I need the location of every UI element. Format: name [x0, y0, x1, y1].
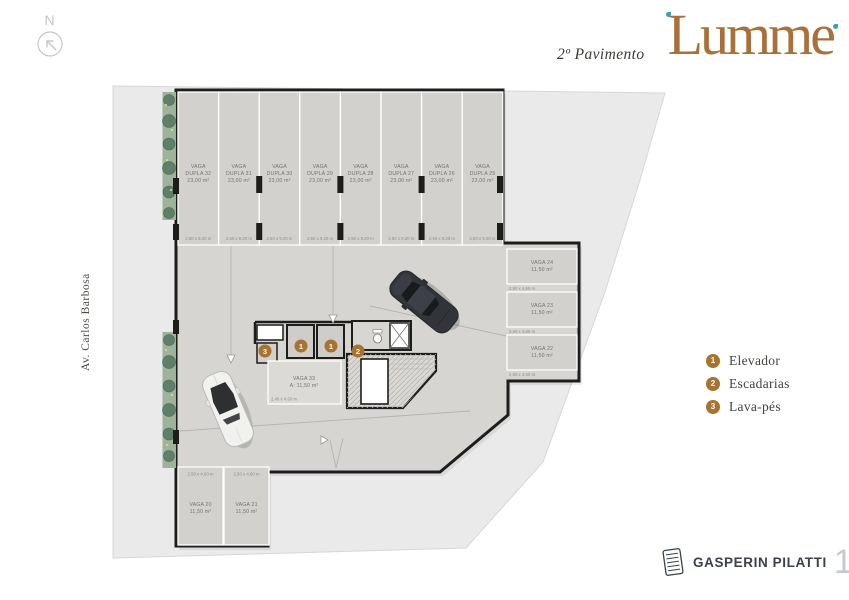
planting-strip-bottom [163, 332, 177, 468]
svg-text:VAGA: VAGA [272, 164, 287, 170]
svg-text:2,50 x 9,20 m: 2,50 x 9,20 m [469, 236, 495, 241]
svg-text:DUPLA 29: DUPLA 29 [307, 171, 333, 177]
svg-text:3: 3 [263, 347, 267, 356]
svg-text:VAGA 20: VAGA 20 [189, 502, 211, 508]
shaft-x-box [390, 323, 409, 348]
svg-text:2,50 x 4,60 m: 2,50 x 4,60 m [509, 372, 535, 377]
stall-dupla-31: VAGA DUPLA 31 23,00 m² 2,50 x 9,20 m [219, 92, 260, 245]
svg-text:DUPLA 27: DUPLA 27 [388, 171, 414, 177]
stall-vaga-33: VAGA 33 A: 11,50 m² 2,46 x 4,60 m [268, 361, 341, 404]
brand-text: Lumme [668, 2, 833, 67]
floorplan-page: { "header": { "floor_label": "2º Pavimen… [0, 0, 849, 600]
north-indicator: N [30, 12, 70, 67]
stall-vaga-20: 2,50 x 4,60 m VAGA 20 11,50 m² [178, 467, 223, 545]
svg-text:2,50 x 4,60 m: 2,50 x 4,60 m [187, 472, 213, 477]
legend-label: Lava-pés [729, 399, 781, 415]
north-label: N [30, 12, 70, 28]
svg-text:23,00 m²: 23,00 m² [350, 178, 372, 184]
legend-label: Escadarias [729, 376, 790, 392]
svg-text:2,50 x 9,20 m: 2,50 x 9,20 m [348, 236, 374, 241]
brand-accent-icon [833, 24, 838, 29]
legend: 1 Elevador 2 Escadarias 3 Lava-pés [706, 349, 790, 418]
svg-text:DUPLA 25: DUPLA 25 [470, 171, 496, 177]
svg-text:2,50 x 4,60 m: 2,50 x 4,60 m [233, 472, 259, 477]
svg-text:1: 1 [299, 342, 303, 351]
legend-item-elevador: 1 Elevador [706, 349, 790, 372]
svg-text:11,50 m²: 11,50 m² [190, 509, 212, 515]
svg-text:VAGA 24: VAGA 24 [531, 260, 553, 266]
legend-marker-2: 2 [706, 377, 720, 391]
anniversary-number: 15 [834, 547, 849, 578]
svg-text:11,50 m²: 11,50 m² [531, 267, 553, 273]
stall-dupla-32: VAGA DUPLA 32 23,00 m² 2,50 x 9,20 m [178, 92, 219, 245]
stall-dupla-26: VAGA DUPLA 26 23,00 m² 2,50 x 9,20 m [422, 92, 463, 245]
north-arrow-icon [30, 28, 70, 62]
svg-text:2,50 x 9,20 m: 2,50 x 9,20 m [266, 236, 292, 241]
planting-strip-top [163, 92, 177, 220]
svg-text:2,50 x 9,20 m: 2,50 x 9,20 m [388, 236, 414, 241]
svg-text:VAGA: VAGA [394, 164, 409, 170]
developer-logo: GASPERIN PILATTI 15 ANOS [660, 546, 849, 578]
svg-text:VAGA 23: VAGA 23 [531, 303, 553, 309]
marker-lava-pes: 3 [259, 345, 272, 358]
brand-logo: Lumme [668, 6, 833, 64]
svg-text:11,50 m²: 11,50 m² [531, 353, 553, 359]
developer-building-icon [660, 546, 686, 578]
svg-text:VAGA: VAGA [353, 164, 368, 170]
site-plan: VAGA DUPLA 32 23,00 m² 2,50 x 9,20 m VAG… [0, 0, 849, 600]
svg-text:VAGA 22: VAGA 22 [531, 346, 553, 352]
stall-vaga-21: 2,50 x 4,60 m VAGA 21 11,50 m² [224, 467, 269, 545]
street-label: Av. Carlos Barbosa [80, 252, 96, 392]
svg-text:VAGA 21: VAGA 21 [235, 502, 257, 508]
right-stalls-block: VAGA 24 11,50 m² 2,50 x 4,60 m VAGA 23 1… [507, 249, 577, 377]
toilet-icon [373, 330, 382, 344]
svg-text:VAGA: VAGA [434, 164, 449, 170]
svg-text:2: 2 [356, 347, 360, 356]
developer-name: GASPERIN PILATTI [693, 555, 827, 570]
svg-text:2,50 x 9,20 m: 2,50 x 9,20 m [429, 236, 455, 241]
bottom-stalls-block: 2,50 x 4,60 m VAGA 20 11,50 m² 2,50 x 4,… [178, 467, 269, 545]
svg-text:2,50 x 9,20 m: 2,50 x 9,20 m [307, 236, 333, 241]
marker-elevator-2: 1 [325, 340, 338, 353]
svg-text:DUPLA 28: DUPLA 28 [348, 171, 374, 177]
anniversary-badge: 15 ANOS [834, 547, 849, 578]
marker-stairs: 2 [352, 345, 365, 358]
stall-dupla-27: VAGA DUPLA 27 23,00 m² 2,50 x 9,20 m [381, 92, 422, 245]
svg-text:23,00 m²: 23,00 m² [309, 178, 331, 184]
stall-dupla-30: VAGA DUPLA 30 23,00 m² 2,50 x 9,20 m [259, 92, 300, 245]
svg-text:23,00 m²: 23,00 m² [431, 178, 453, 184]
svg-text:11,50 m²: 11,50 m² [236, 509, 258, 515]
svg-text:2,50 x 4,60 m: 2,50 x 4,60 m [509, 286, 535, 291]
svg-text:VAGA: VAGA [231, 164, 246, 170]
brand-accent-icon [666, 12, 671, 17]
svg-text:23,00 m²: 23,00 m² [390, 178, 412, 184]
svg-text:DUPLA 26: DUPLA 26 [429, 171, 455, 177]
svg-text:VAGA: VAGA [313, 164, 328, 170]
svg-text:VAGA 33: VAGA 33 [293, 376, 315, 382]
svg-text:11,50 m²: 11,50 m² [531, 310, 553, 316]
svg-text:23,00 m²: 23,00 m² [228, 178, 250, 184]
svg-text:23,00 m²: 23,00 m² [187, 178, 209, 184]
svg-text:VAGA: VAGA [475, 164, 490, 170]
legend-item-escadarias: 2 Escadarias [706, 372, 790, 395]
svg-text:DUPLA 32: DUPLA 32 [185, 171, 211, 177]
stall-dupla-25: VAGA DUPLA 25 23,00 m² 2,50 x 9,20 m [462, 92, 503, 245]
svg-text:VAGA: VAGA [191, 164, 206, 170]
svg-text:DUPLA 30: DUPLA 30 [267, 171, 293, 177]
legend-item-lava-pes: 3 Lava-pés [706, 395, 790, 418]
svg-text:23,00 m²: 23,00 m² [471, 178, 493, 184]
svg-text:2,50 x 9,20 m: 2,50 x 9,20 m [226, 236, 252, 241]
floor-label: 2º Pavimento [557, 46, 645, 64]
svg-text:2,46 x 4,60 m: 2,46 x 4,60 m [271, 397, 297, 402]
svg-text:1: 1 [329, 342, 333, 351]
svg-text:23,00 m²: 23,00 m² [268, 178, 290, 184]
stall-dupla-28: VAGA DUPLA 28 23,00 m² 2,50 x 9,20 m [340, 92, 381, 245]
svg-text:2,50 x 9,20 m: 2,50 x 9,20 m [185, 236, 211, 241]
marker-elevator-1: 1 [295, 340, 308, 353]
svg-text:A: 11,50 m²: A: 11,50 m² [290, 383, 319, 389]
legend-label: Elevador [729, 353, 780, 369]
svg-text:DUPLA 31: DUPLA 31 [226, 171, 252, 177]
legend-marker-1: 1 [706, 354, 720, 368]
legend-marker-3: 3 [706, 400, 720, 414]
svg-text:2,50 x 4,60 m: 2,50 x 4,60 m [509, 329, 535, 334]
stall-dupla-29: VAGA DUPLA 29 23,00 m² 2,50 x 9,20 m [300, 92, 341, 245]
double-stalls-band: VAGA DUPLA 32 23,00 m² 2,50 x 9,20 m VAG… [178, 92, 503, 245]
shaft-cell [257, 325, 283, 340]
